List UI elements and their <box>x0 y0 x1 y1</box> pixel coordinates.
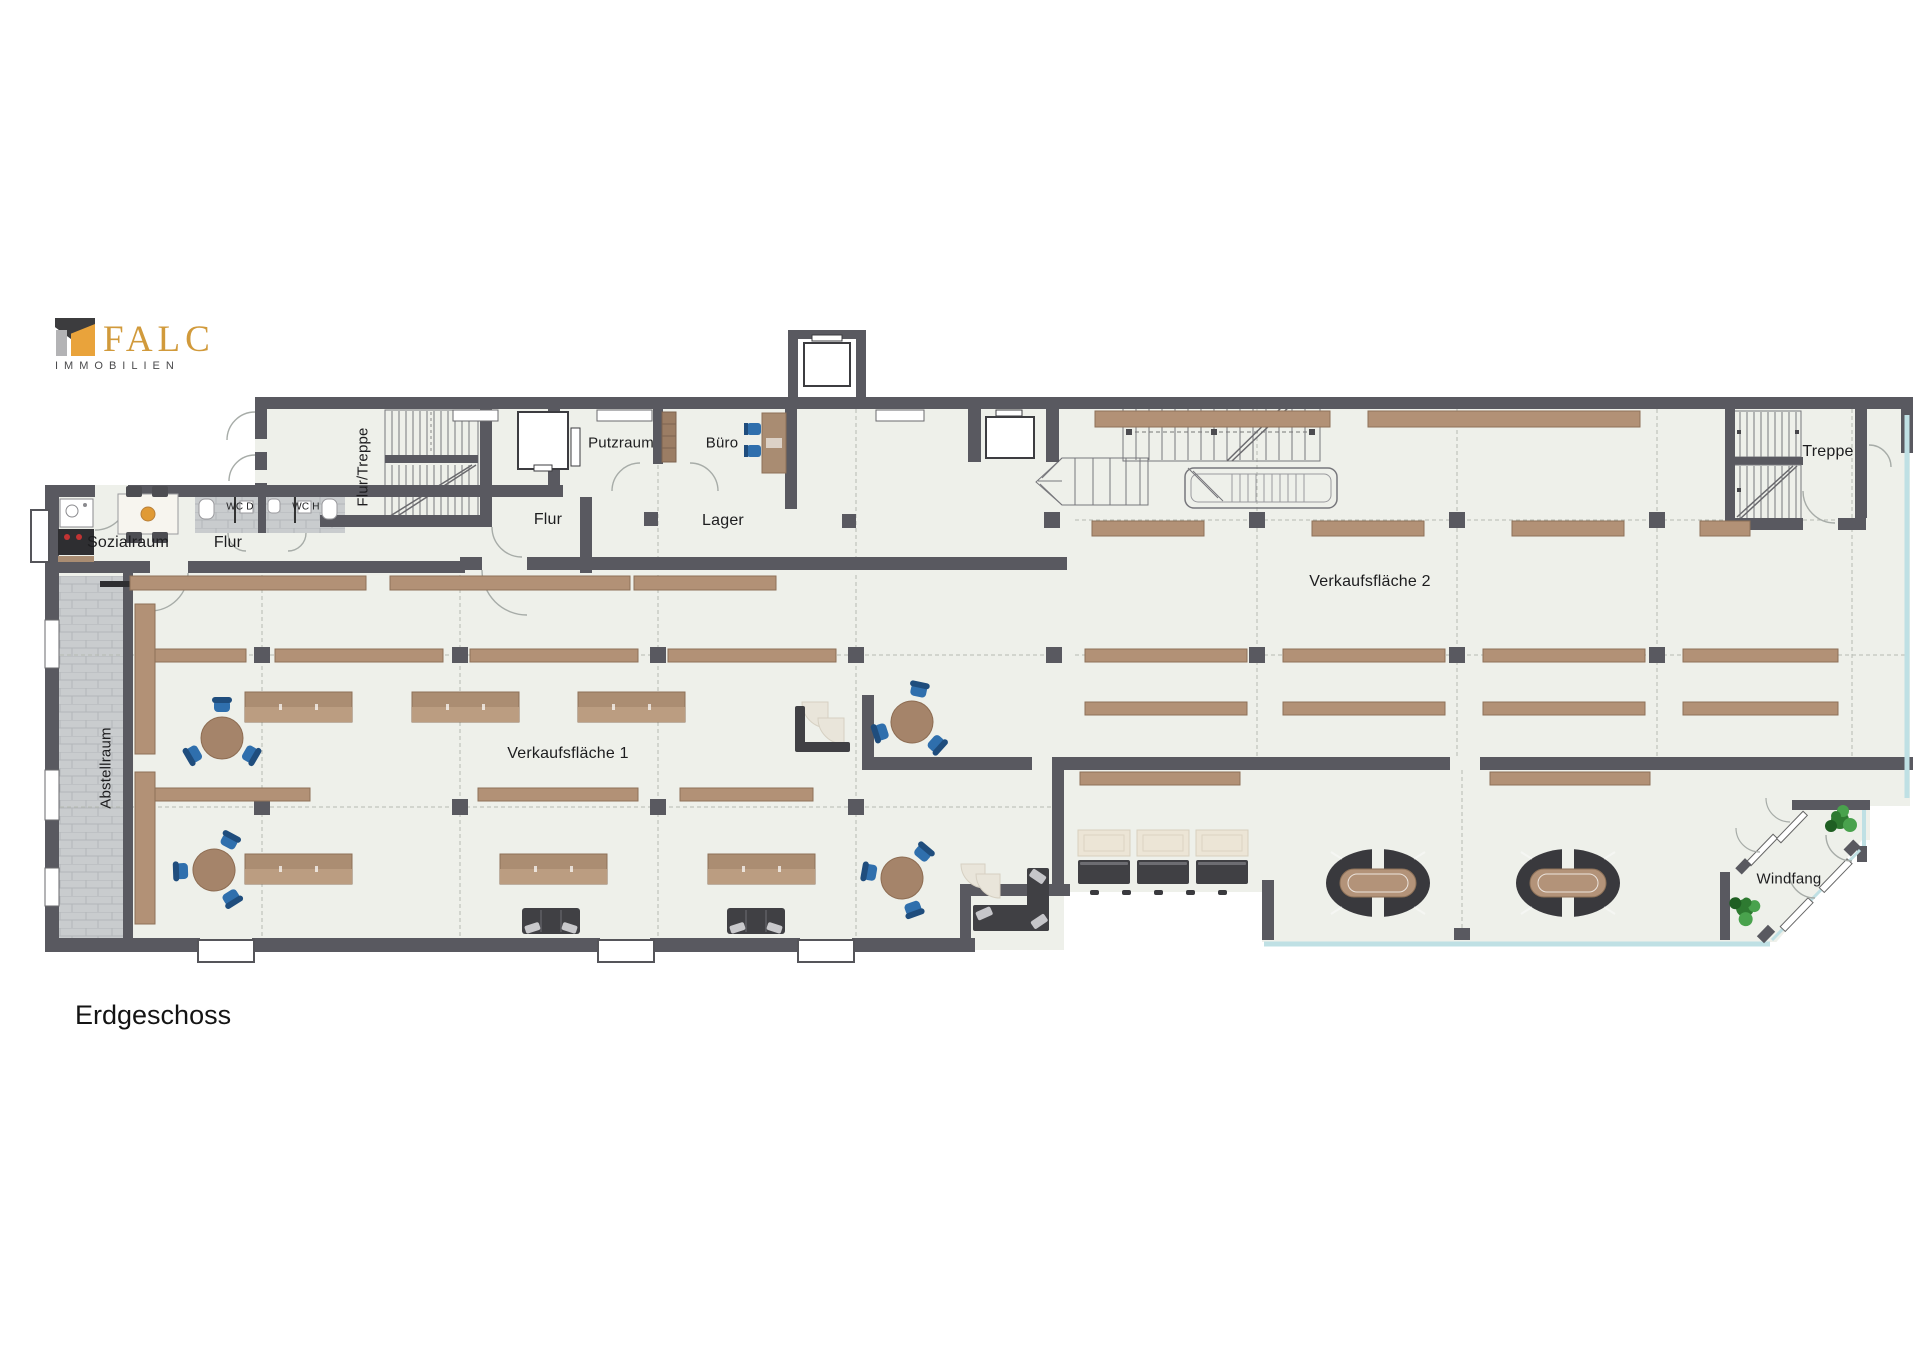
room-label-putzraum: Putzraum <box>588 435 654 452</box>
floor-plan-drawing <box>0 0 1920 1357</box>
floor-plan-page: Flur/Treppe Putzraum Büro Flur Lager Soz… <box>0 0 1920 1357</box>
floor-title: Erdgeschoss <box>75 1000 231 1031</box>
room-label-treppe: Treppe <box>1802 443 1853 461</box>
kitchen-sink <box>60 499 93 527</box>
falc-house-icon <box>55 318 95 356</box>
elevator-2 <box>804 335 850 386</box>
room-label-abstellraum: Abstellraum <box>98 727 115 808</box>
logo-brand-text: FALC <box>103 323 215 356</box>
room-label-sozialraum: Sozialraum <box>87 534 169 552</box>
room-label-flur-treppe: Flur/Treppe <box>355 427 372 506</box>
room-label-wc-d: WC D <box>226 502 253 513</box>
room-label-verkaufsflaeche-2: Verkaufsfläche 2 <box>1309 573 1431 591</box>
room-label-flur-mid: Flur <box>534 511 562 529</box>
logo-subtitle-text: IMMOBILIEN <box>55 360 245 372</box>
room-label-buero: Büro <box>706 435 739 452</box>
room-label-flur-left: Flur <box>214 534 242 552</box>
elevator-3 <box>986 410 1034 458</box>
room-label-verkaufsflaeche-1: Verkaufsfläche 1 <box>507 745 629 763</box>
room-label-wc-h: WC H <box>292 502 319 513</box>
room-label-windfang: Windfang <box>1757 871 1822 888</box>
room-label-lager: Lager <box>702 512 744 530</box>
falc-logo: FALC IMMOBILIEN <box>55 318 245 372</box>
